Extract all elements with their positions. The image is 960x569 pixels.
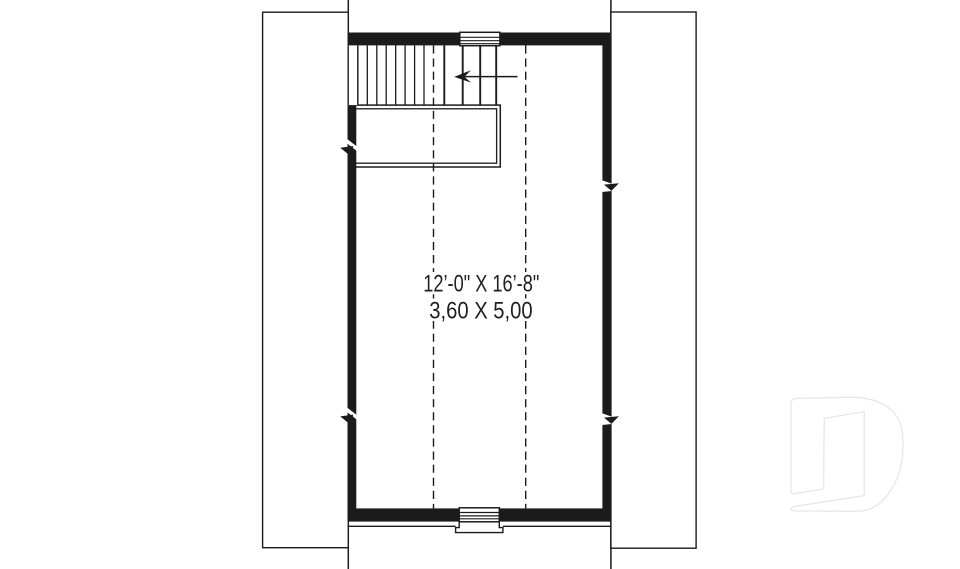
svg-text:3,60 X 5,00: 3,60 X 5,00 [429,297,533,324]
svg-text:12’-0" X 16’-8": 12’-0" X 16’-8" [423,271,539,298]
